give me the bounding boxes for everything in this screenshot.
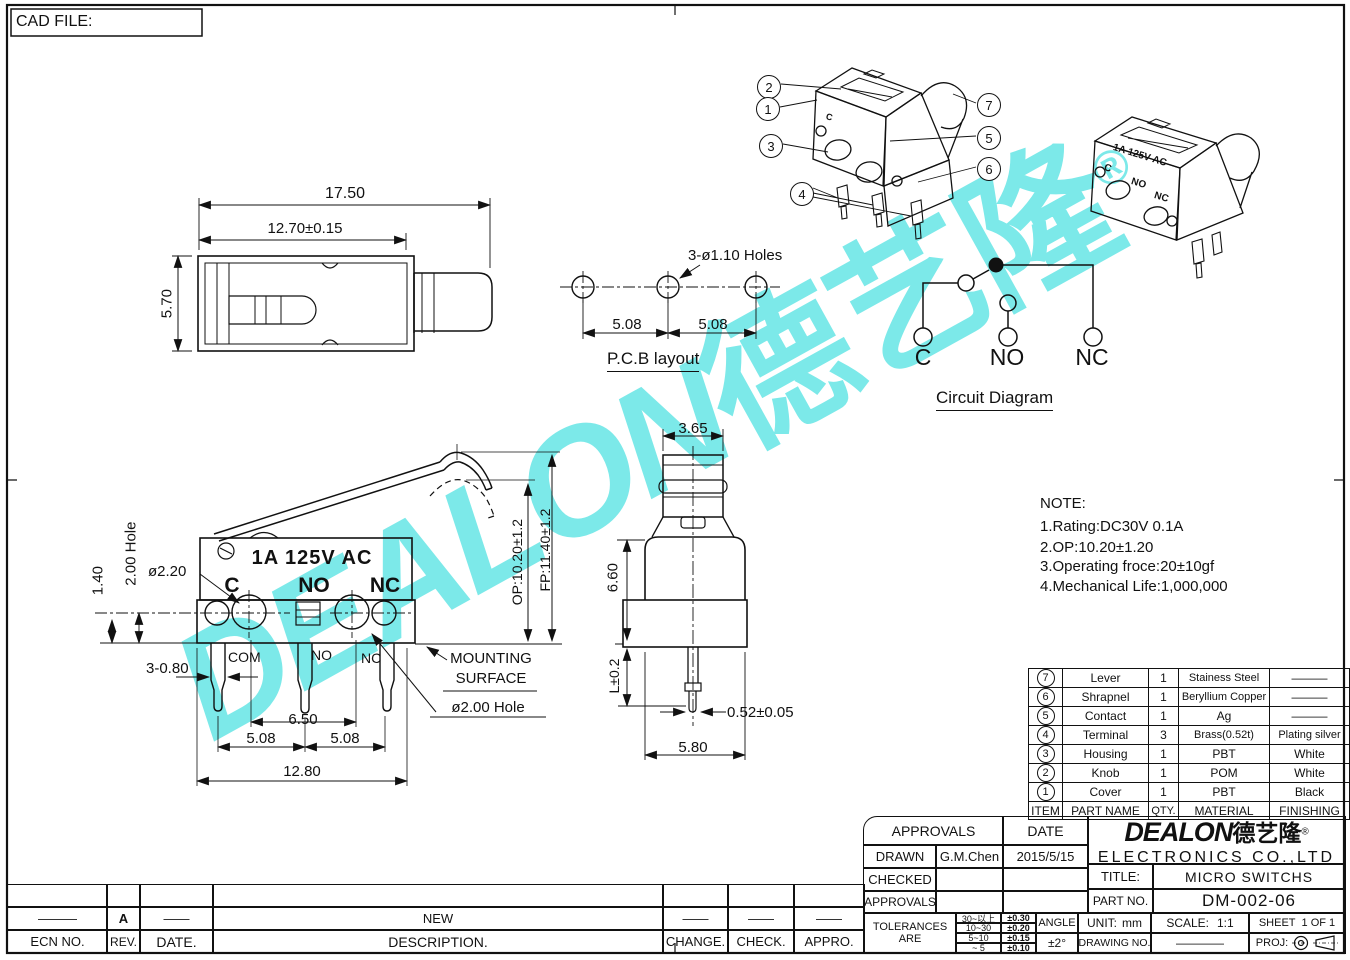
item-badge: 2 [1037,764,1055,782]
date-header: DATE [1002,816,1089,846]
cad-file-label: CAD FILE: [16,13,92,31]
callout-3: 3 [759,134,783,158]
unit-value: mm [1122,916,1142,930]
dim-0-52: 0.52±0.05 [727,704,794,721]
change-header: CHANGE. [662,929,729,954]
scale-label: SCALE: [1166,916,1209,930]
proj-label: PROJ: [1256,937,1288,949]
check-header: CHECK. [727,929,795,954]
dim-12-80: 12.80 [278,763,326,780]
appro-value: —— [793,906,865,931]
ecn-header: ECN NO. [7,929,108,954]
tol-value-4: ±0.10 [1000,942,1037,954]
company-logo: DEALON德艺隆® [1124,816,1308,848]
callout-6: 6 [977,157,1001,181]
note-line-4: 4.Mechanical Life:1,000,000 [1040,578,1228,595]
table-row: 4 Terminal 3 Brass(0.52t) Plating silver [1029,726,1350,745]
drawing-no-label: DRAWING NO. [1077,932,1152,954]
angle-value: ±2° [1035,932,1079,954]
ecn-empty [7,884,108,908]
front-com-pin: COM [228,649,261,665]
date-value: —— [139,906,214,931]
front-c: C [220,574,244,598]
rev-header: REV. [106,929,141,954]
perspective-assembled-view [1091,117,1259,278]
third-angle-projection-icon [1292,935,1338,951]
sheet-label: SHEET [1259,917,1296,929]
unit-cell: UNIT:mm [1077,912,1152,934]
table-row: 3 Housing 1 PBT White [1029,745,1350,764]
note-line-1: 1.Rating:DC30V 0.1A [1040,518,1183,535]
callout-5: 5 [977,126,1001,150]
item-badge: 4 [1037,726,1055,744]
note-line-2: 2.OP:10.20±1.20 [1040,539,1153,556]
parts-table: 7 Lever 1 Stainess Steel ——— 6 Shrapnel … [1028,668,1350,820]
sheet-cell: SHEET1 OF 1 [1248,912,1346,934]
pcb-pitch-left: 5.08 [607,316,647,333]
dim-6-60: 6.60 [604,556,621,600]
pcb-layout [560,265,780,339]
description-header: DESCRIPTION. [212,929,664,954]
dim-2-00-hole: 2.00 Hole [122,511,139,597]
pcb-pitch-right: 5.08 [693,316,733,333]
drawn-name: G.M.Chen [935,844,1004,869]
approvals-date [1002,890,1089,914]
drawn-date: 2015/5/15 [1002,844,1089,869]
table-row: 2 Knob 1 POM White [1029,764,1350,783]
approvals-name [935,890,1004,914]
checked-date [1002,867,1089,892]
angle-label: ANGLE [1035,912,1079,934]
title-label: TITLE: [1087,863,1154,890]
drawing-no-value: ———— [1150,932,1250,954]
change-value: —— [662,906,729,931]
note-line-3: 3.Operating froce:20±10gf [1040,558,1214,575]
title-value: MICRO SWITCHS [1152,863,1346,890]
description-value: NEW [212,906,664,931]
approvals-header: APPROVALS [863,816,1004,846]
dim-5-80: 5.80 [671,739,715,756]
dim-op: OP:10.20±1.2 [509,512,525,612]
drawing-sheet: DEALON德艺隆® [0,0,1350,960]
dim-fp: FP:11.40±1.2 [537,500,553,600]
callout-1: 1 [756,97,780,121]
logo-latin: DEALON [1124,817,1232,847]
pcb-caption: P.C.B layout [607,349,699,372]
dim-5-70: 5.70 [158,280,175,328]
date-header-bottom: DATE. [139,929,214,954]
callout-2: 2 [757,75,781,99]
circuit-caption: Circuit Diagram [936,388,1053,411]
item-badge: 6 [1037,688,1055,706]
tolerances-label: TOLERANCES ARE [863,912,957,954]
dim-6-50: 6.50 [281,711,325,728]
table-row: 1 Cover 1 PBT Black [1029,783,1350,802]
approvals-label: APPROVALS [863,890,937,914]
item-badge: 5 [1037,707,1055,725]
item-badge: 1 [1037,783,1055,801]
mounting-line2: SURFACE [447,670,535,687]
table-row: 6 Shrapnel 1 Beryllium Copper ——— [1029,688,1350,707]
rev-value: A [106,906,141,931]
checked-name [935,867,1004,892]
dim-3-0-80: 3-0.80 [146,660,189,677]
scale-cell: SCALE:1:1 [1150,912,1250,934]
check-empty [727,884,795,908]
table-row: 5 Contact 1 Ag ——— [1029,707,1350,726]
dim-l: L±0.2 [606,651,622,701]
mounting-line1: MOUNTING [445,650,537,667]
scale-value: 1:1 [1217,916,1234,930]
dim-1-40: 1.40 [89,559,106,603]
dim-17-50: 17.50 [320,185,370,203]
callout-4: 4 [790,182,814,206]
drawn-label: DRAWN [863,844,937,869]
pcb-holes-label: 3-ø1.10 Holes [688,247,782,264]
front-rating: 1A 125V AC [242,547,382,570]
logo-cjk: 德艺隆 [1232,820,1301,846]
front-nc-pin: NC [361,650,381,666]
logo-registered-icon: ® [1301,827,1308,838]
appro-header: APPRO. [793,929,865,954]
part-no-value: DM-002-06 [1152,888,1346,914]
item-badge: 7 [1037,669,1055,687]
callout-7: 7 [977,93,1001,117]
company-block: DEALON德艺隆® ELECTRONICS CO.,LTD [1087,816,1346,865]
change-empty [662,884,729,908]
dim-2-20: ø2.20 [148,563,186,580]
dim-12-70: 12.70±0.15 [258,220,352,237]
ecn-value: ——— [7,906,108,931]
date-empty [139,884,214,908]
part-no-label: PART NO. [1087,888,1154,914]
checked-label: CHECKED [863,867,937,892]
circuit-no-label: NO [986,344,1028,370]
circuit-nc-label: NC [1071,344,1113,370]
front-no-pin: NO [311,647,332,663]
perspective-exploded-view [780,68,976,239]
appro-empty [793,884,865,908]
tol-range-4: ~ 5 [955,942,1002,954]
circuit-diagram [914,258,1102,346]
circuit-c-label: C [912,344,934,370]
rev-empty [106,884,141,908]
check-value: —— [727,906,795,931]
dim-3-65: 3.65 [671,420,715,437]
note-title: NOTE: [1040,495,1086,512]
table-row: 7 Lever 1 Stainess Steel ——— [1029,669,1350,688]
sheet-value: 1 OF 1 [1302,917,1336,929]
item-badge: 3 [1037,745,1055,763]
dim-5-08-right: 5.08 [325,730,365,747]
dim-5-08-left: 5.08 [241,730,281,747]
front-nc: NC [366,574,404,598]
front-no: NO [295,574,333,598]
proj-cell: PROJ: [1248,932,1346,954]
desc-empty [212,884,664,908]
unit-label: UNIT: [1087,916,1117,930]
dim-2-00-hole-leader: ø2.00 Hole [432,699,544,716]
